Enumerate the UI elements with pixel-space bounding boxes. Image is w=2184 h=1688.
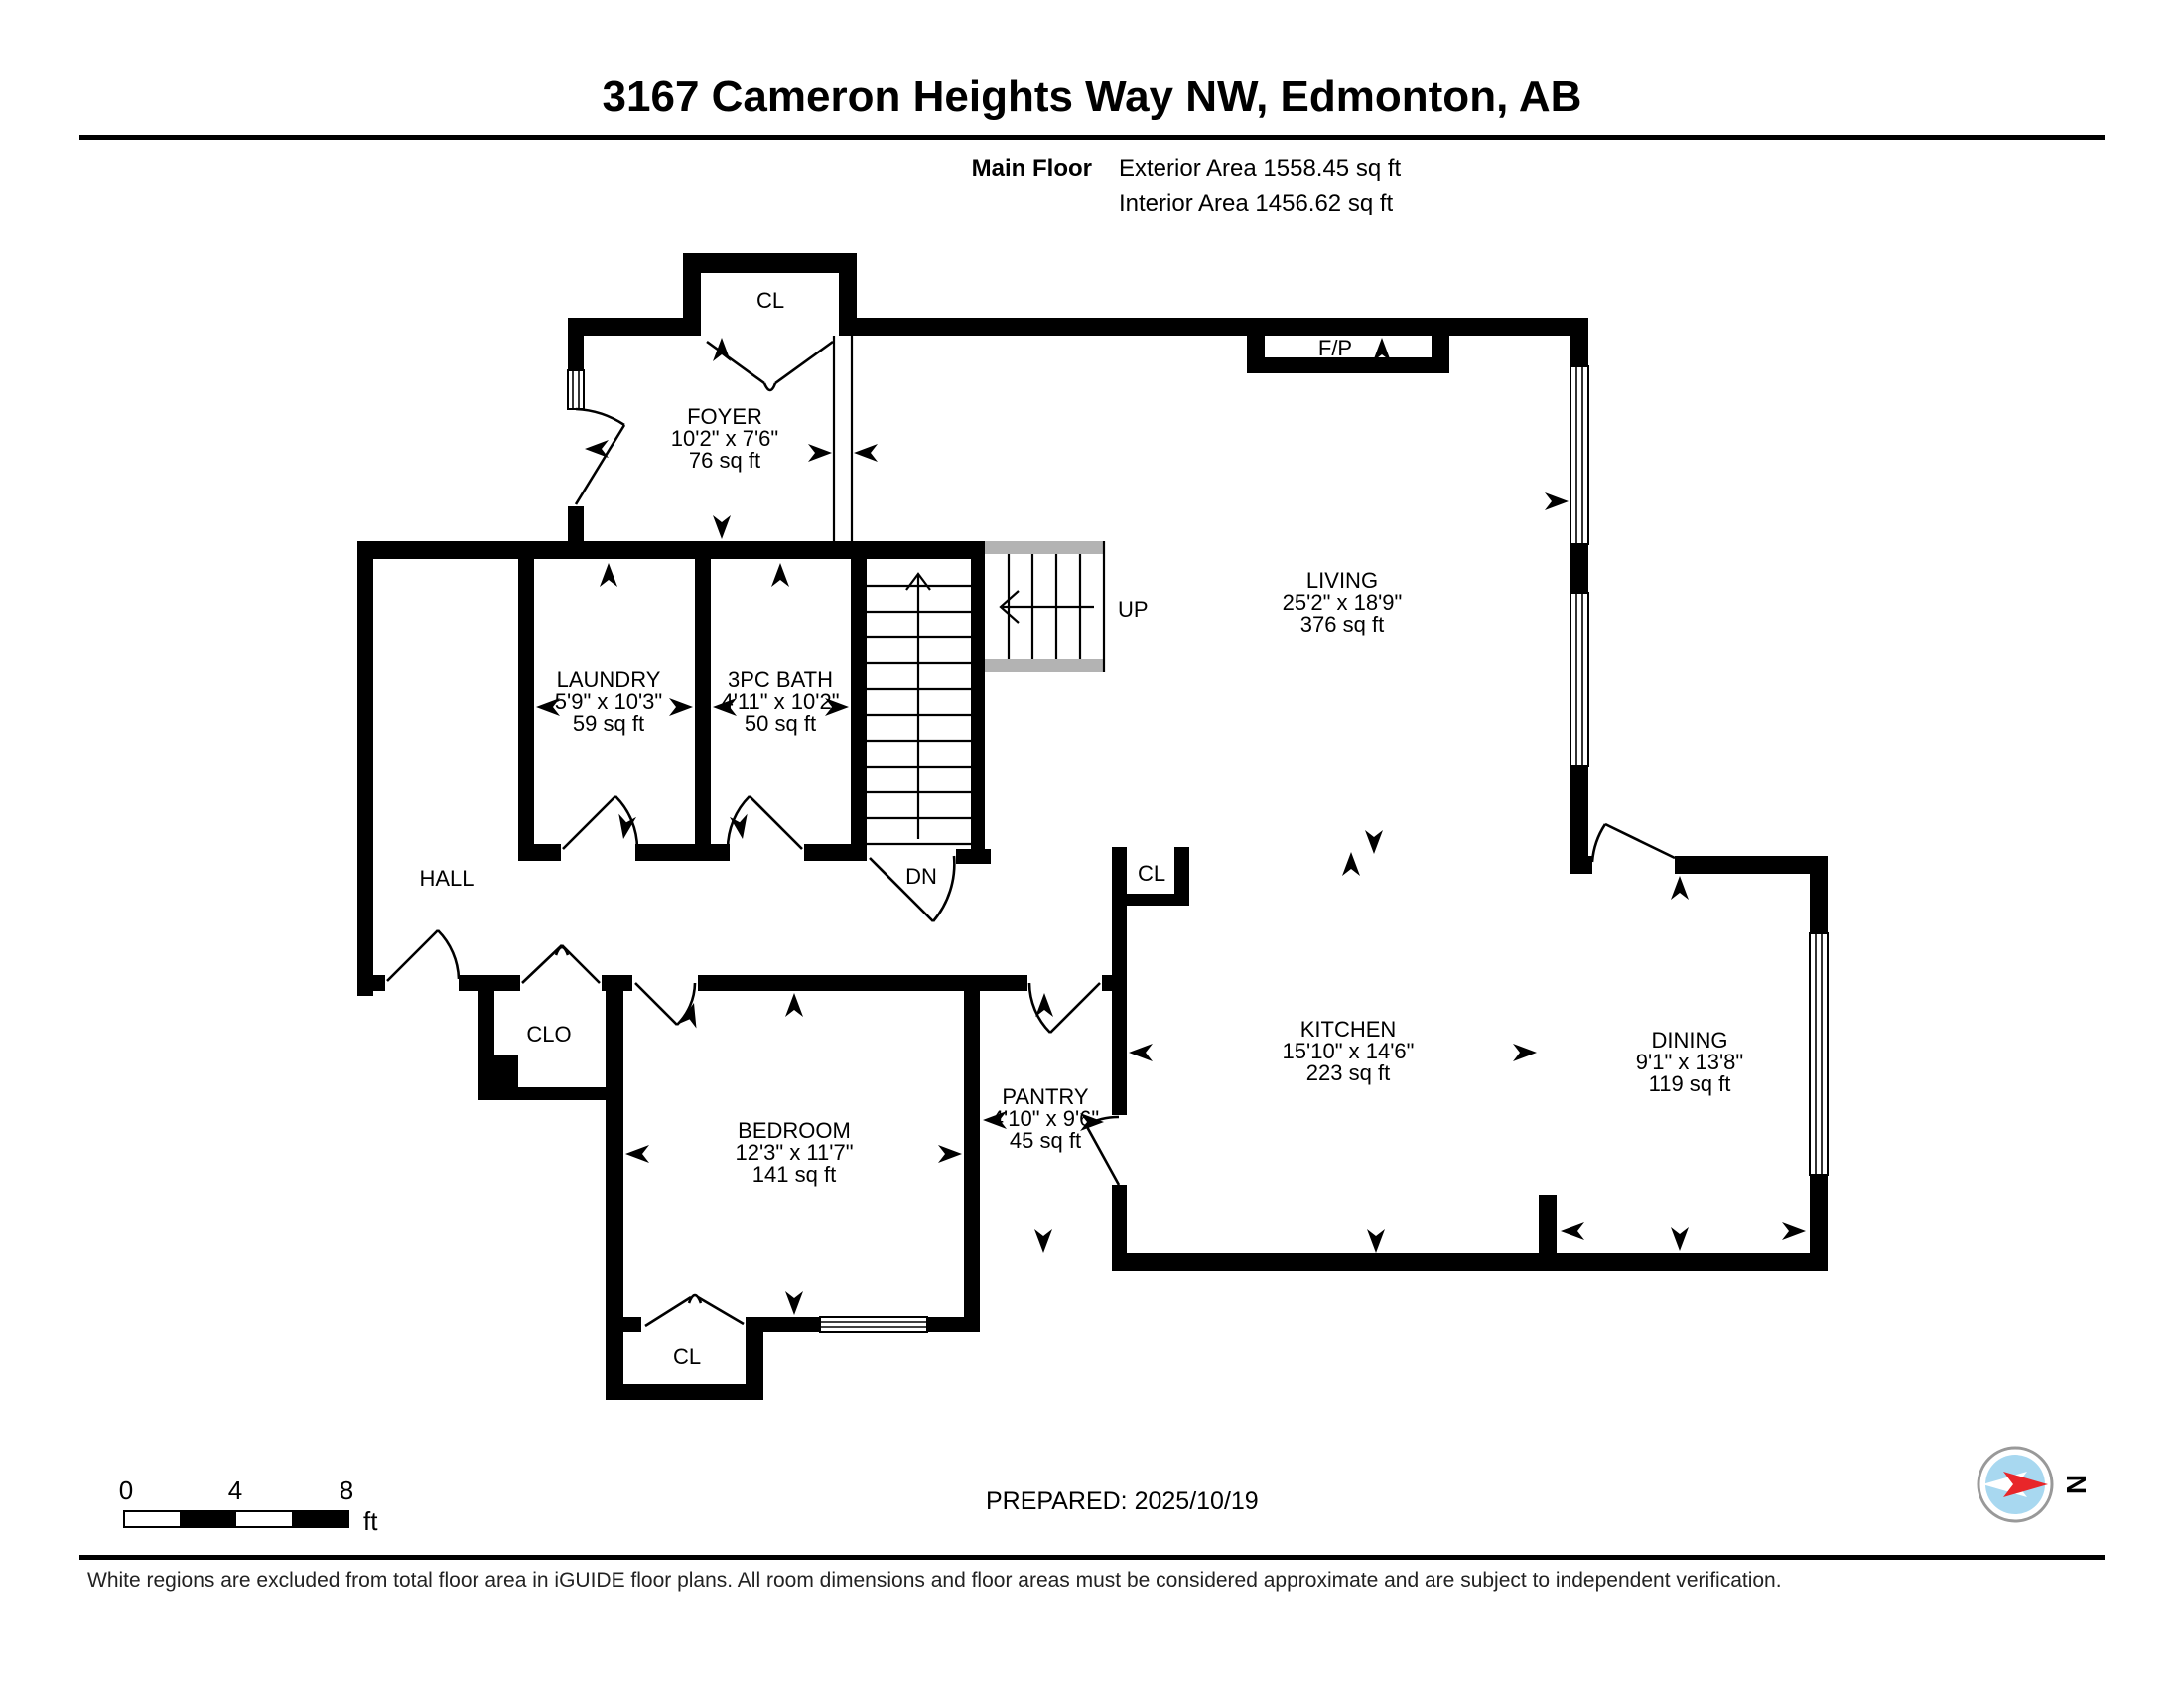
foyer-area: 76 sq ft — [689, 448, 760, 473]
room-label-living: LIVING 25'2" x 18'9" 376 sq ft — [1283, 568, 1403, 636]
compass: N — [1979, 1448, 2092, 1521]
window-foyer — [568, 370, 584, 409]
stair-treads — [867, 574, 971, 844]
foyer-closet-label: CL — [756, 288, 784, 313]
compass-north-label: N — [2061, 1475, 2092, 1494]
prepared-date: PREPARED: 2025/10/19 — [986, 1487, 1259, 1515]
dimension-arrows — [536, 338, 1806, 1315]
living-area: 376 sq ft — [1300, 612, 1384, 636]
room-label-bedroom: BEDROOM 12'3" x 11'7" 141 sq ft — [735, 1118, 853, 1187]
scale-0: 0 — [119, 1476, 133, 1505]
bath-area: 50 sq ft — [745, 711, 816, 736]
scale-4: 4 — [228, 1476, 242, 1505]
windows — [568, 366, 1828, 1332]
scale-unit: ft — [363, 1506, 378, 1536]
hall-closet-doors — [522, 945, 600, 983]
dining-area: 119 sq ft — [1649, 1071, 1731, 1096]
staircase — [834, 336, 1104, 844]
stairs-dn-label: DN — [905, 864, 937, 889]
scale-seg-2 — [292, 1511, 348, 1527]
hall-label: HALL — [419, 866, 474, 891]
doors — [387, 342, 1675, 1326]
kitchen-closet-label: CL — [1138, 861, 1165, 886]
bedroom-closet-doors — [645, 1295, 744, 1326]
entry-door — [576, 409, 624, 504]
room-label-laundry: LAUNDRY 5'9" x 10'3" 59 sq ft — [555, 667, 662, 736]
dining-door — [1592, 824, 1675, 862]
window-living-2 — [1570, 593, 1588, 766]
room-label-bath: 3PC BATH 4'11" x 10'2" 50 sq ft — [721, 667, 839, 736]
footer: White regions are excluded from total fl… — [79, 1555, 2105, 1592]
floor-plan-page: 3167 Cameron Heights Way NW, Edmonton, A… — [0, 0, 2184, 1688]
room-label-dining: DINING 9'1" x 13'8" 119 sq ft — [1636, 1028, 1743, 1096]
floor-plan-svg: 3167 Cameron Heights Way NW, Edmonton, A… — [0, 0, 2184, 1688]
exterior-area: Exterior Area 1558.45 sq ft — [1119, 155, 1402, 182]
room-label-kitchen: KITCHEN 15'10" x 14'6" 223 sq ft — [1283, 1017, 1415, 1085]
scale-bar: 0 4 8 ft — [119, 1476, 378, 1536]
bedroom-closet-label: CL — [673, 1344, 701, 1369]
laundry-area: 59 sq ft — [573, 711, 644, 736]
header-divider — [79, 135, 2105, 140]
window-living-1 — [1570, 366, 1588, 544]
window-dining — [1810, 933, 1828, 1175]
interior-area: Interior Area 1456.62 sq ft — [1119, 190, 1394, 216]
room-label-pantry: PANTRY 4'10" x 9'6" 45 sq ft — [992, 1084, 1099, 1153]
footer-disclaimer: White regions are excluded from total fl… — [87, 1569, 1782, 1592]
stair-landing — [985, 541, 1104, 672]
fireplace-label: F/P — [1318, 336, 1352, 360]
stair-railing — [834, 336, 852, 541]
scale-seg-1 — [180, 1511, 236, 1527]
stairs-up-label: UP — [1118, 597, 1149, 622]
hall-closet-label: CLO — [526, 1022, 571, 1047]
walls — [357, 253, 1828, 1400]
bedroom-area: 141 sq ft — [752, 1162, 836, 1187]
window-bedroom — [820, 1317, 927, 1332]
room-label-foyer: FOYER 10'2" x 7'6" 76 sq ft — [671, 404, 778, 473]
hall-side-door — [387, 930, 459, 981]
footer-divider — [79, 1555, 2105, 1560]
header: 3167 Cameron Heights Way NW, Edmonton, A… — [79, 72, 2105, 216]
floor-label: Main Floor — [972, 155, 1092, 182]
scale-8: 8 — [340, 1476, 353, 1505]
pantry-area: 45 sq ft — [1010, 1128, 1081, 1153]
page-title: 3167 Cameron Heights Way NW, Edmonton, A… — [603, 72, 1582, 121]
kitchen-area: 223 sq ft — [1306, 1060, 1390, 1085]
